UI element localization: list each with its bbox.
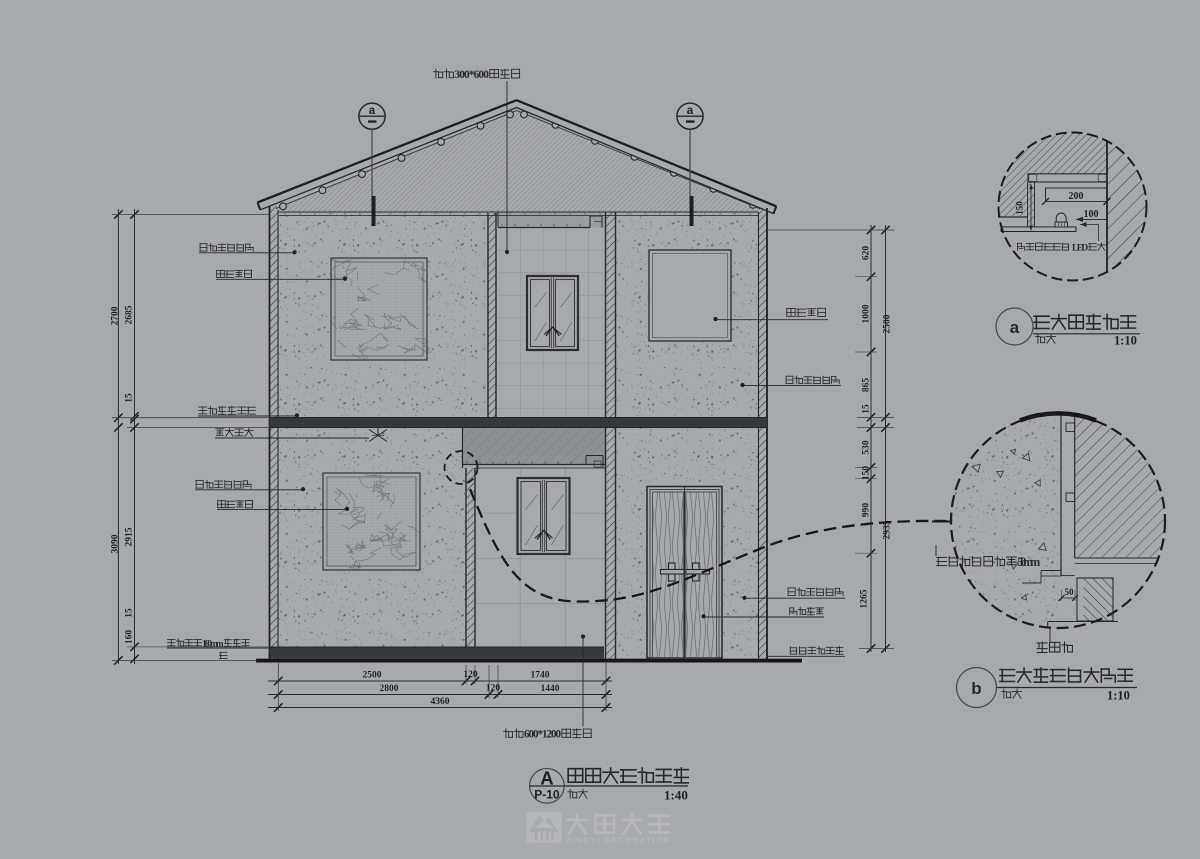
svg-text:15: 15: [862, 404, 872, 414]
svg-text:100: 100: [1084, 209, 1099, 220]
svg-text:2915: 2915: [125, 527, 135, 546]
svg-text:150: 150: [1015, 201, 1025, 215]
svg-text:200: 200: [1069, 191, 1084, 202]
svg-text:600*1200: 600*1200: [524, 729, 562, 741]
svg-text:620: 620: [862, 246, 872, 261]
svg-text:160: 160: [125, 630, 135, 645]
svg-text:1:40: 1:40: [664, 787, 688, 802]
svg-text:3090: 3090: [111, 534, 121, 553]
svg-text:150: 150: [862, 466, 872, 481]
svg-text:50: 50: [1065, 587, 1075, 597]
svg-text:990: 990: [862, 503, 872, 518]
svg-text:120: 120: [486, 684, 501, 694]
svg-text:300*600: 300*600: [454, 69, 489, 81]
svg-text:A: A: [540, 768, 553, 789]
svg-text:50mm: 50mm: [1017, 555, 1041, 569]
svg-text:15: 15: [125, 393, 135, 403]
svg-text:1740: 1740: [531, 671, 550, 681]
svg-text:2700: 2700: [111, 306, 121, 325]
svg-text:120: 120: [463, 670, 478, 680]
svg-text:15: 15: [125, 608, 135, 618]
svg-text:1440: 1440: [541, 684, 560, 694]
svg-text:530: 530: [862, 440, 872, 455]
svg-text:2800: 2800: [380, 684, 399, 694]
svg-text:1:10: 1:10: [1107, 689, 1130, 703]
svg-text:b: b: [971, 679, 981, 698]
svg-text:1265: 1265: [860, 589, 870, 608]
svg-text:a: a: [369, 105, 376, 117]
svg-text:2500: 2500: [883, 314, 893, 333]
svg-text:XINGYI DECORATION: XINGYI DECORATION: [566, 835, 671, 844]
svg-text:4360: 4360: [431, 697, 450, 707]
svg-text:a: a: [687, 105, 694, 117]
svg-text:1000: 1000: [862, 304, 872, 323]
svg-text:2685: 2685: [125, 305, 135, 324]
svg-text:2500: 2500: [363, 671, 382, 681]
svg-text:a: a: [1010, 318, 1020, 337]
svg-text:LED: LED: [1072, 243, 1088, 253]
svg-text:P-10: P-10: [534, 787, 560, 801]
svg-text:865: 865: [862, 378, 872, 393]
svg-text:1:10: 1:10: [1114, 334, 1137, 348]
